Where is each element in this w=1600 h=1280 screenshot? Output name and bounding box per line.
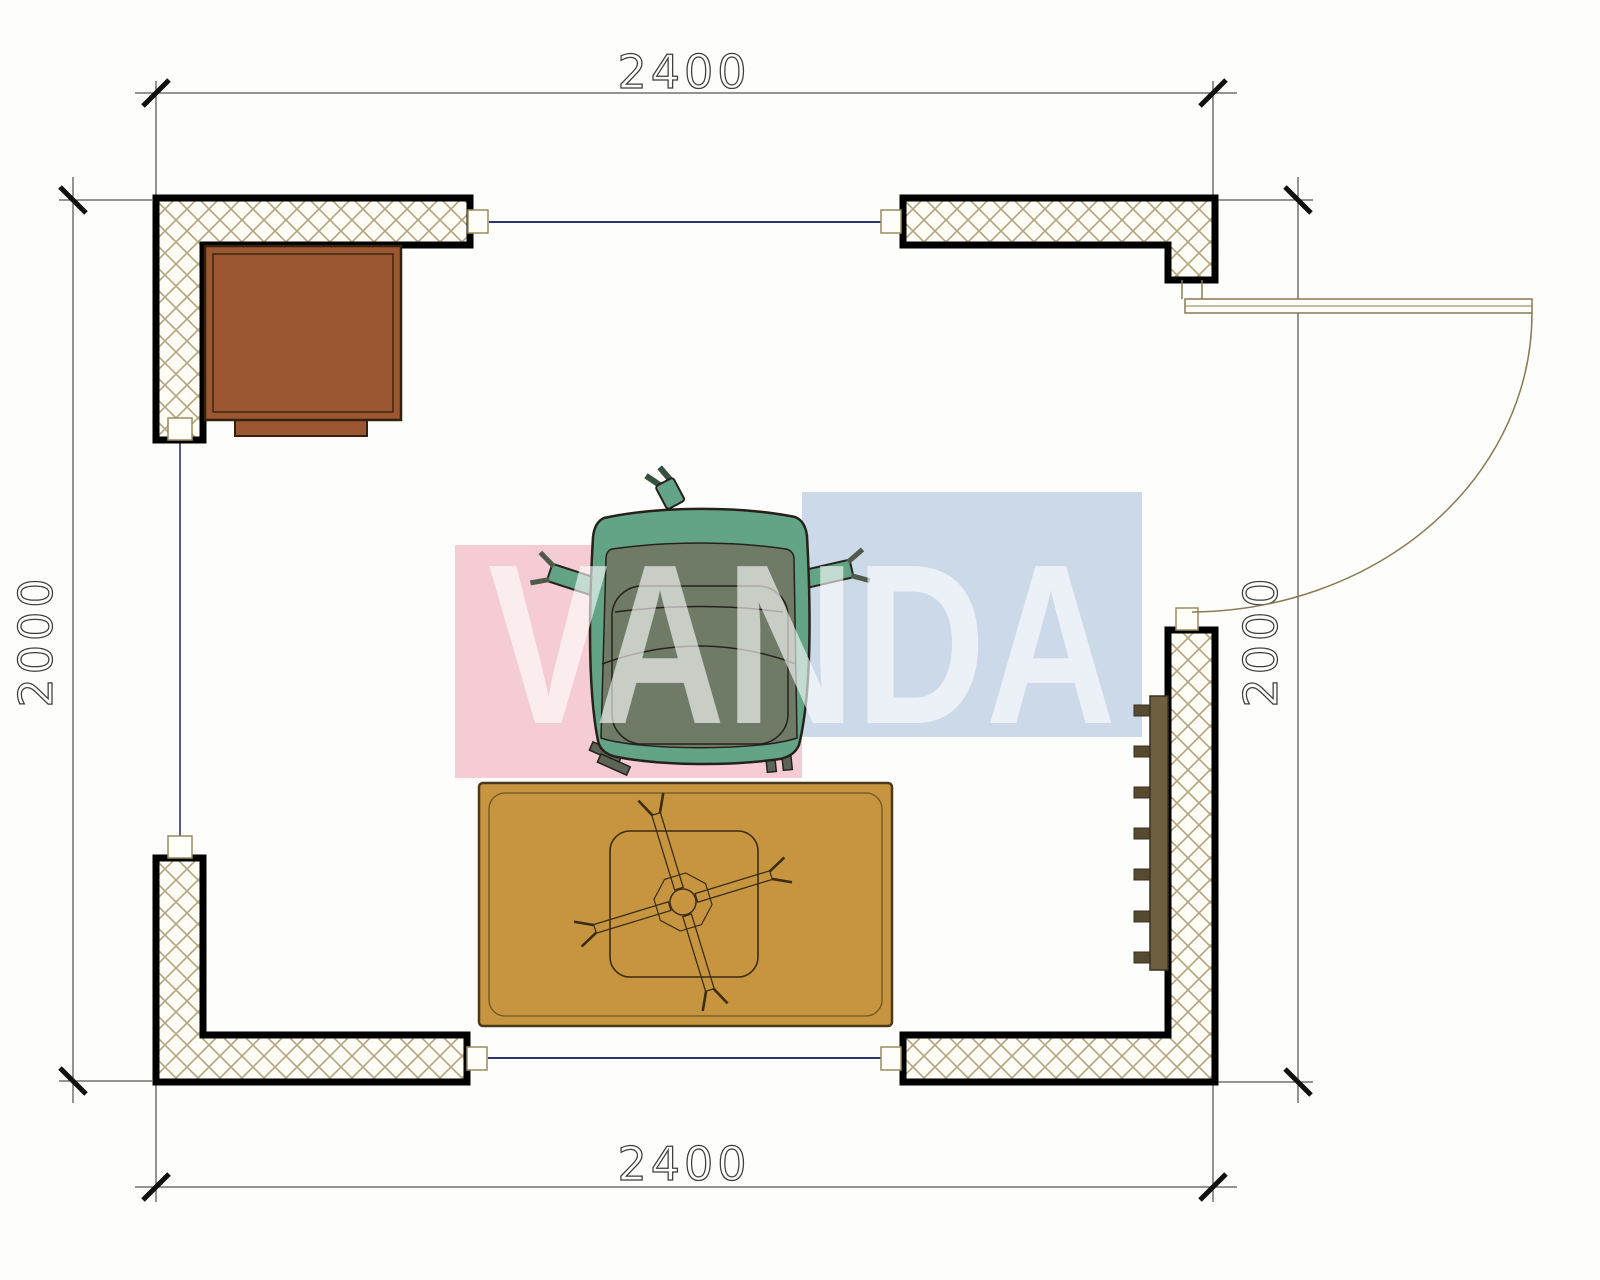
armchair-knob [645, 464, 685, 511]
door-arc [1192, 313, 1532, 612]
floor-plan-drawing: 2400 2400 2000 2000 [0, 0, 1600, 1280]
door-swing[interactable] [1182, 280, 1532, 612]
cabinet-base [235, 420, 367, 436]
rug-block[interactable] [479, 783, 892, 1026]
dim-bottom-label: 2400 [617, 1137, 750, 1191]
window-jamb [881, 210, 901, 233]
dim-top-label: 2400 [617, 45, 750, 99]
dim-right-label: 2000 [1234, 574, 1288, 707]
cabinet-block[interactable] [205, 246, 401, 436]
dimension-left [59, 177, 152, 1103]
window-jamb [881, 1047, 901, 1070]
radiator-body[interactable] [1150, 696, 1168, 970]
wall-bottom-left [156, 858, 467, 1082]
rug[interactable] [479, 783, 892, 1026]
radiator-block[interactable] [1134, 696, 1168, 970]
watermark-text: VANDA [488, 518, 1116, 772]
window-jamb [168, 418, 192, 440]
cabinet-body[interactable] [205, 246, 401, 420]
window-jamb [168, 836, 192, 858]
floor-plan-canvas: 2400 2400 2000 2000 [0, 0, 1600, 1280]
window-jamb [467, 1047, 487, 1070]
dim-left-label: 2000 [9, 574, 63, 707]
window-jamb [468, 210, 488, 233]
wall-top-right [903, 198, 1215, 280]
